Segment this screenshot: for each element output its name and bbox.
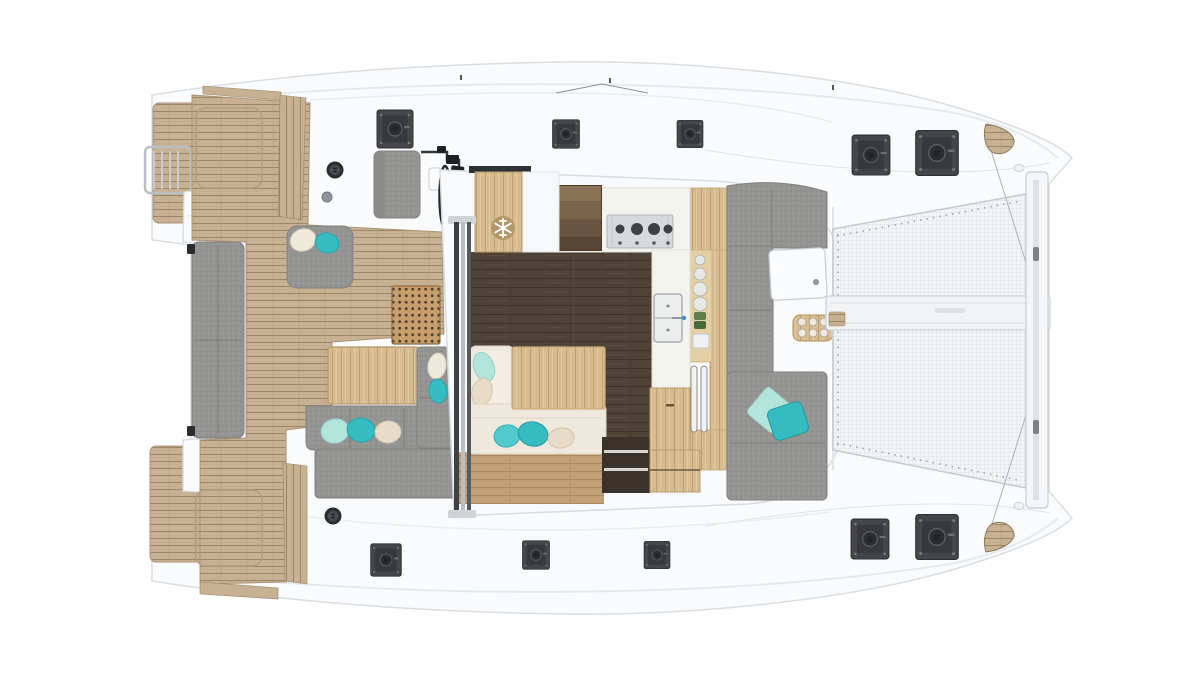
teak-gunwale-top-v bbox=[278, 95, 306, 220]
antenna-tick bbox=[460, 75, 462, 80]
salon-floor-oak bbox=[458, 452, 604, 504]
bench-bracket-bottom bbox=[187, 426, 195, 436]
deck-hatch bbox=[553, 120, 580, 149]
trampoline-net bbox=[833, 194, 1026, 488]
beam-teak-step bbox=[829, 312, 845, 326]
stove-burner bbox=[648, 223, 660, 235]
deck-plan-stage bbox=[0, 0, 1200, 675]
fridge-cabinet bbox=[469, 166, 559, 252]
bow-portlight-bottom bbox=[1014, 502, 1024, 509]
cockpit-table bbox=[328, 347, 419, 404]
deck-hatch bbox=[677, 120, 703, 147]
deck-hatch bbox=[644, 541, 670, 568]
helm-sofa bbox=[374, 151, 420, 218]
salon-table bbox=[512, 347, 605, 409]
deck-plan-canvas bbox=[0, 0, 1200, 675]
deck-hatch bbox=[377, 110, 413, 148]
stove bbox=[607, 215, 673, 248]
stove-burner bbox=[664, 225, 673, 234]
vent-slat bbox=[691, 366, 697, 432]
companionway-stairs bbox=[556, 185, 602, 251]
center-beam bbox=[826, 296, 1050, 330]
herb-jar bbox=[694, 312, 706, 320]
vent-slat bbox=[701, 366, 707, 432]
stove-burner bbox=[616, 225, 625, 234]
galley-sink bbox=[654, 294, 686, 342]
antenna-tick bbox=[832, 85, 834, 90]
antenna-tick bbox=[609, 78, 611, 83]
aft-bench bbox=[187, 242, 244, 438]
cockpit-chaise bbox=[287, 225, 353, 288]
perforated-grate bbox=[392, 286, 440, 344]
faucet-handle bbox=[682, 316, 686, 320]
cutting-board bbox=[693, 334, 709, 348]
salon-floor-dark-2 bbox=[603, 352, 652, 438]
snowflake-icon bbox=[491, 216, 515, 240]
deck-hatch bbox=[851, 519, 889, 559]
herb-jar bbox=[694, 321, 706, 329]
deck-hatch bbox=[523, 541, 550, 570]
bench-bracket-top bbox=[187, 244, 195, 254]
shelf-unit bbox=[602, 437, 650, 493]
rope-clutch bbox=[446, 155, 459, 164]
deck-vent bbox=[322, 192, 332, 202]
front-beam bbox=[1026, 172, 1048, 508]
deck-hatch bbox=[916, 515, 958, 560]
winch bbox=[327, 162, 344, 179]
rope-clutch bbox=[437, 146, 446, 153]
stove-burner bbox=[631, 223, 643, 235]
fore-cockpit-table bbox=[769, 248, 828, 301]
teak-gunwale-bottom-v bbox=[283, 463, 307, 584]
deck-hatch bbox=[852, 135, 890, 175]
deck-hatch bbox=[371, 544, 402, 576]
salon-floor-dark bbox=[470, 252, 652, 354]
winch bbox=[325, 508, 342, 525]
bow-portlight-top bbox=[1014, 164, 1024, 171]
deck-hatch bbox=[916, 131, 958, 176]
